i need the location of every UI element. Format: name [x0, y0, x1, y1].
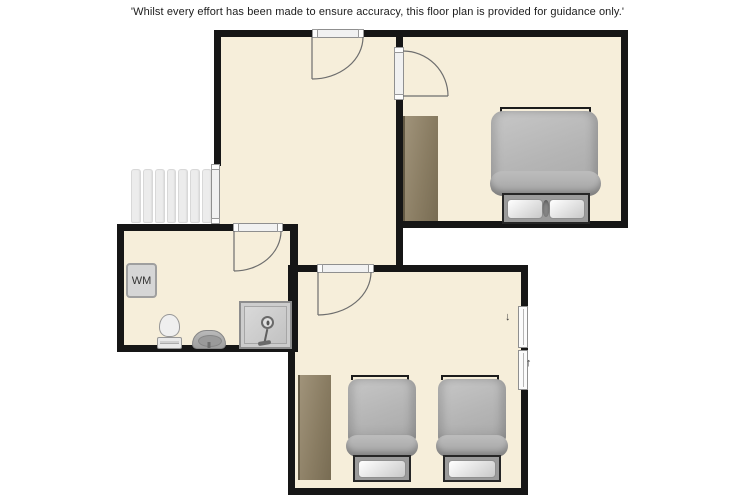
bed-duvet-fold — [346, 435, 418, 457]
bed-headboard-area — [502, 193, 590, 224]
shower-head-icon — [261, 316, 274, 329]
washing-machine: WM — [126, 263, 157, 298]
stair-tread — [178, 169, 188, 223]
bathroom-door-opening — [233, 223, 283, 232]
pillow — [358, 460, 406, 478]
wall-top — [214, 30, 628, 37]
bedroom2-wardrobe — [298, 375, 331, 480]
wall-landing-left — [214, 37, 221, 166]
bed-headboard-area — [443, 455, 501, 482]
pillow — [549, 199, 585, 219]
shower-drain-icon — [258, 340, 271, 346]
wall-bedroom1-right — [621, 37, 628, 228]
double-bed — [490, 103, 601, 224]
pillow — [448, 460, 496, 478]
bed-duvet-fold — [436, 435, 508, 457]
stair-tread — [155, 169, 165, 223]
sink-tap-icon — [208, 342, 211, 348]
floor-plan: 'Whilst every effort has been made to en… — [0, 0, 755, 504]
stair-tread — [131, 169, 141, 223]
bed-headboard-area — [353, 455, 411, 482]
window-arrow-down-icon: ↓ — [505, 312, 511, 323]
pillow — [507, 199, 543, 219]
bedroom1-wardrobe — [403, 116, 438, 221]
staircase — [131, 169, 212, 223]
bedroom2-door-opening — [317, 264, 374, 273]
sink — [192, 330, 226, 349]
wall-bedroom2-left — [288, 265, 295, 495]
pillow-gap — [543, 200, 550, 217]
stair-tread — [143, 169, 153, 223]
wall-bedroom2-bottom — [288, 488, 528, 495]
bedroom2-window-lower — [518, 350, 528, 390]
bed-duvet — [438, 379, 506, 441]
disclaimer-text: 'Whilst every effort has been made to en… — [0, 6, 755, 18]
window-arrow-up-icon: ↑ — [526, 358, 532, 369]
single-bed-1 — [346, 373, 418, 485]
washing-machine-label: WM — [132, 275, 152, 287]
bedroom1-door-opening — [394, 47, 404, 100]
stairs-opening — [211, 164, 220, 224]
bed-duvet — [348, 379, 416, 441]
bedroom2-window-upper — [518, 306, 528, 348]
wall-bathroom-left — [117, 231, 124, 352]
stair-tread — [167, 169, 177, 223]
toilet-bowl — [159, 314, 180, 337]
single-bed-2 — [436, 373, 508, 485]
landing-door-opening — [312, 29, 364, 38]
toilet-cistern — [157, 337, 182, 349]
stair-tread — [190, 169, 200, 223]
shower-enclosure — [239, 301, 292, 349]
